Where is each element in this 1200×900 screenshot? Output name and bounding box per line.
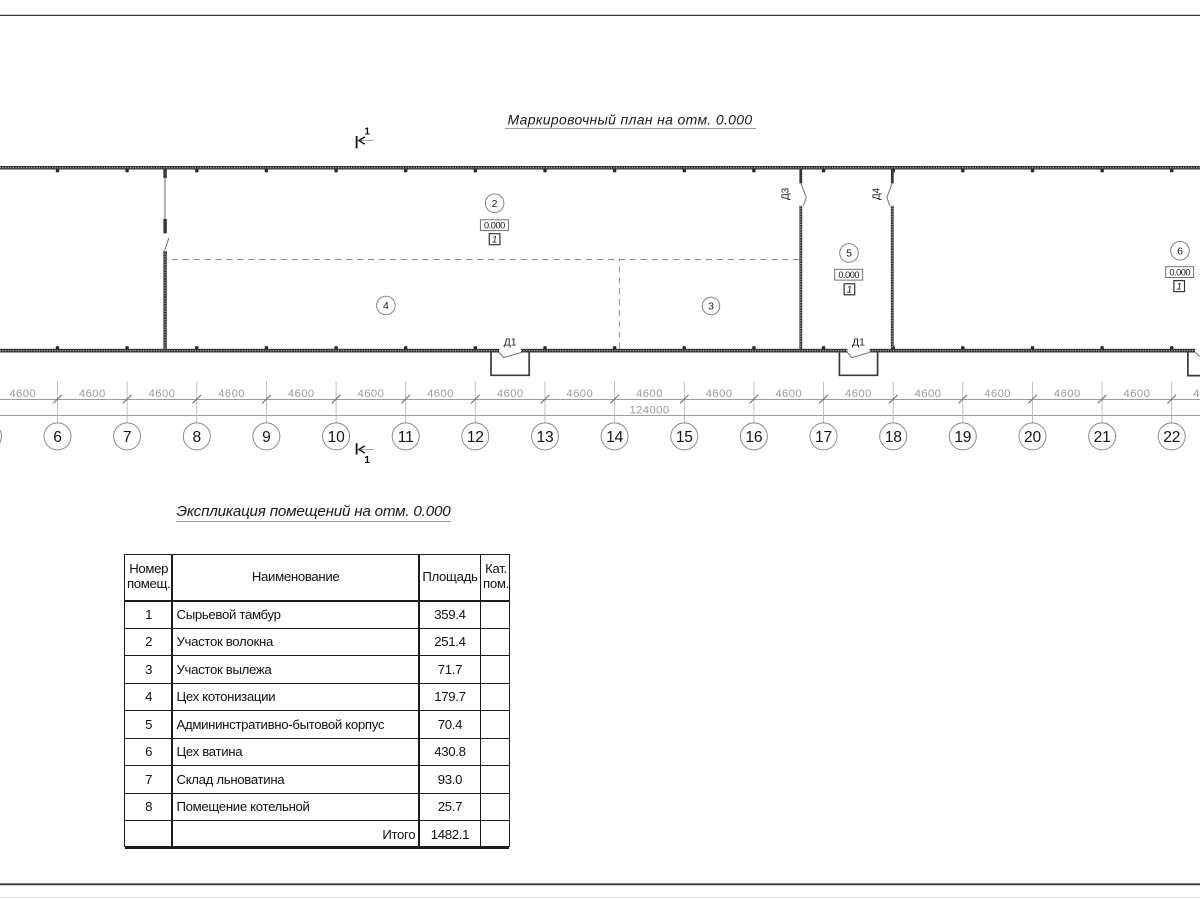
svg-text:4600: 4600 <box>915 388 942 400</box>
svg-text:11: 11 <box>398 429 414 446</box>
svg-text:4600: 4600 <box>497 388 524 400</box>
svg-text:1: 1 <box>492 235 497 246</box>
svg-text:4600: 4600 <box>636 388 663 400</box>
svg-text:4600: 4600 <box>566 388 593 400</box>
svg-text:4600: 4600 <box>1054 388 1081 400</box>
svg-text:4600: 4600 <box>845 388 872 400</box>
svg-text:18: 18 <box>885 429 902 446</box>
svg-text:4600: 4600 <box>79 388 106 400</box>
svg-text:21: 21 <box>1094 429 1111 446</box>
svg-text:22: 22 <box>1163 429 1180 446</box>
svg-text:2: 2 <box>492 198 498 210</box>
svg-text:6: 6 <box>1177 245 1183 257</box>
svg-text:4600: 4600 <box>427 388 454 400</box>
svg-text:9: 9 <box>262 429 270 446</box>
svg-text:Д1: Д1 <box>852 337 865 349</box>
svg-text:17: 17 <box>815 429 832 446</box>
svg-text:Д3: Д3 <box>781 187 792 200</box>
svg-text:Д1: Д1 <box>504 337 517 349</box>
svg-text:19: 19 <box>954 429 971 446</box>
svg-text:4600: 4600 <box>358 388 385 400</box>
svg-text:124000: 124000 <box>629 404 669 416</box>
svg-text:4600: 4600 <box>1193 388 1200 400</box>
svg-text:5: 5 <box>846 248 852 260</box>
svg-text:4600: 4600 <box>706 388 733 400</box>
svg-text:20: 20 <box>1024 429 1041 446</box>
svg-text:Д4: Д4 <box>872 187 883 200</box>
svg-text:16: 16 <box>745 429 762 446</box>
svg-text:1: 1 <box>364 125 370 137</box>
svg-text:8: 8 <box>193 429 201 446</box>
svg-text:13: 13 <box>537 429 554 446</box>
svg-text:3: 3 <box>708 301 714 313</box>
svg-text:7: 7 <box>123 429 131 446</box>
svg-text:1: 1 <box>847 285 852 296</box>
svg-text:15: 15 <box>676 429 693 446</box>
svg-text:4600: 4600 <box>288 388 315 400</box>
svg-text:4600: 4600 <box>9 388 36 400</box>
svg-text:Маркировочный план на отм. 0.0: Маркировочный план на отм. 0.000 <box>507 112 752 128</box>
svg-text:4: 4 <box>383 300 389 312</box>
svg-text:0.000: 0.000 <box>484 221 505 231</box>
svg-text:12: 12 <box>467 429 484 446</box>
svg-text:1: 1 <box>1177 281 1182 292</box>
svg-text:4600: 4600 <box>149 388 176 400</box>
svg-text:6: 6 <box>53 429 61 446</box>
svg-text:4600: 4600 <box>984 388 1011 400</box>
svg-text:4600: 4600 <box>775 388 802 400</box>
svg-text:4600: 4600 <box>218 388 245 400</box>
svg-text:10: 10 <box>328 429 345 446</box>
svg-text:0.000: 0.000 <box>1169 268 1190 278</box>
svg-text:0.000: 0.000 <box>838 270 859 280</box>
svg-text:14: 14 <box>606 429 623 446</box>
svg-text:4600: 4600 <box>1124 388 1151 400</box>
svg-text:1: 1 <box>364 454 370 466</box>
